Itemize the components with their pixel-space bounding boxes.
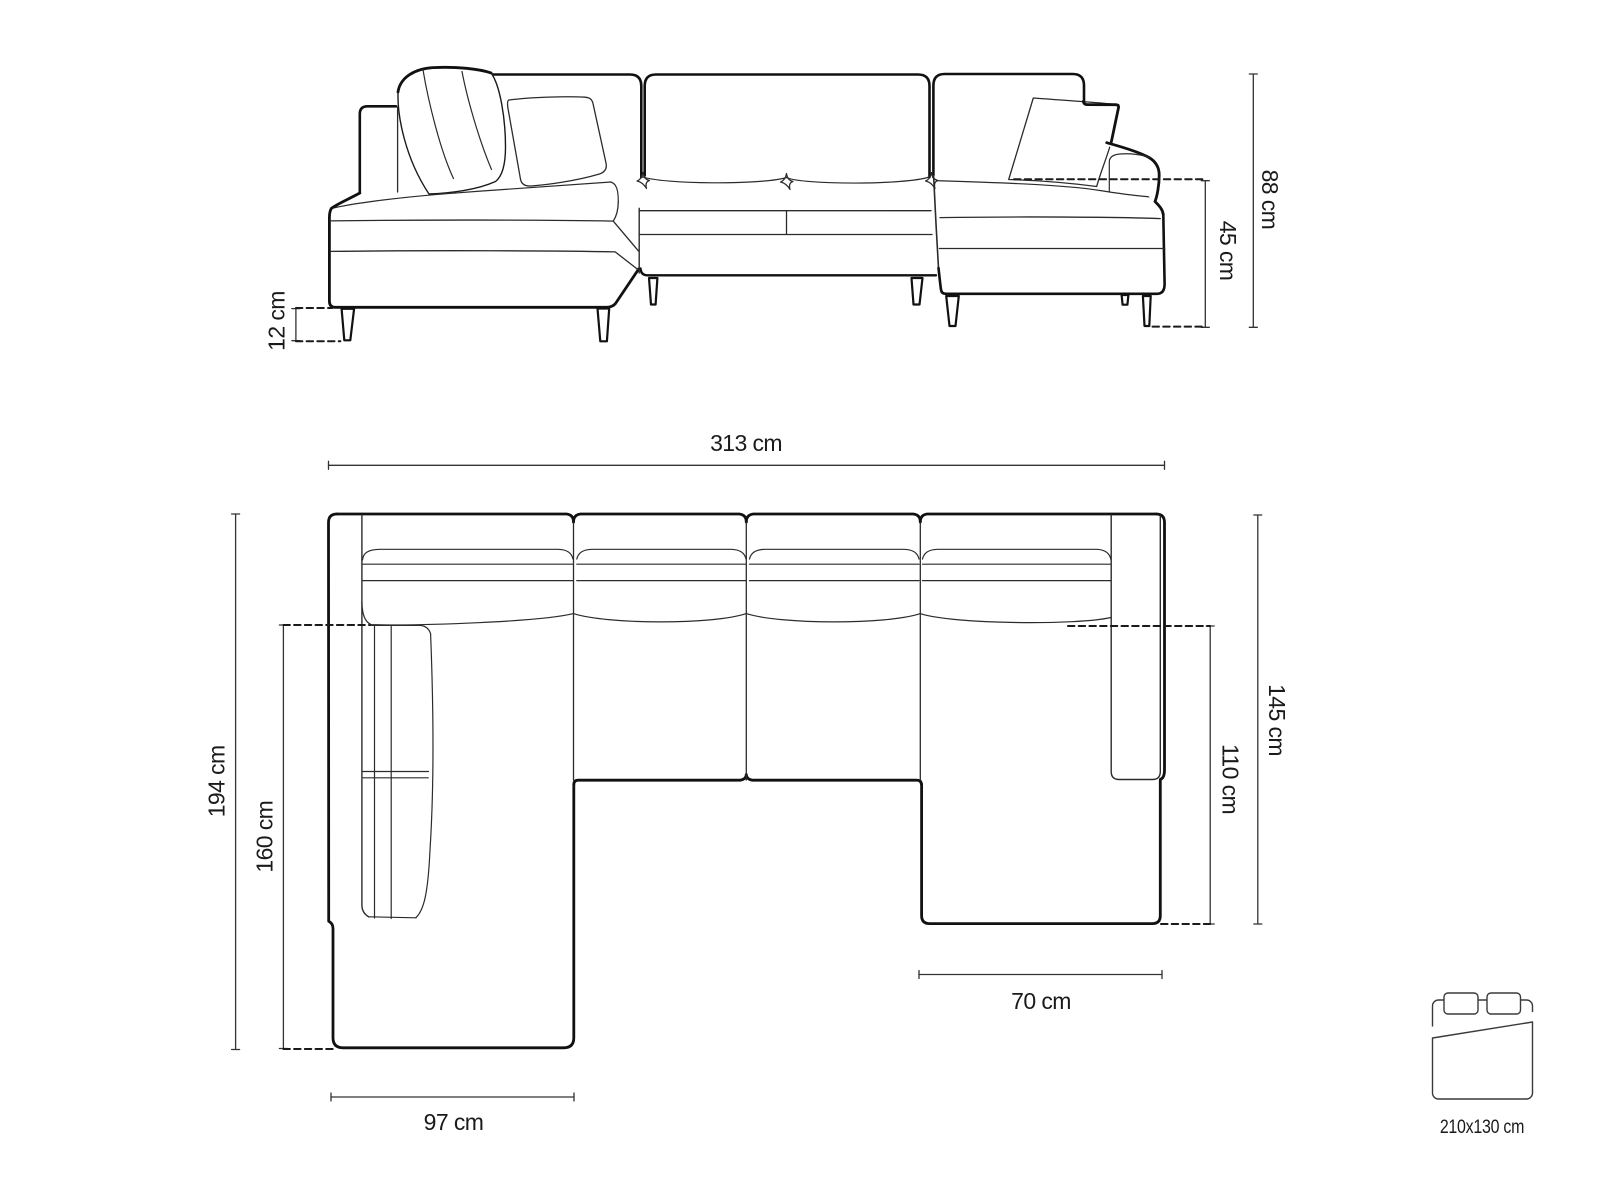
svg-text:88 cm: 88 cm — [1257, 170, 1283, 230]
svg-text:210x130 cm: 210x130 cm — [1440, 1116, 1524, 1138]
svg-text:70 cm: 70 cm — [1011, 988, 1071, 1014]
svg-text:145 cm: 145 cm — [1264, 684, 1290, 756]
svg-text:160 cm: 160 cm — [251, 801, 277, 873]
svg-text:12 cm: 12 cm — [263, 291, 289, 351]
svg-text:45 cm: 45 cm — [1215, 221, 1241, 281]
svg-text:194 cm: 194 cm — [204, 745, 230, 817]
svg-text:97 cm: 97 cm — [424, 1109, 484, 1135]
svg-text:313 cm: 313 cm — [710, 430, 782, 456]
svg-text:110 cm: 110 cm — [1218, 744, 1244, 814]
